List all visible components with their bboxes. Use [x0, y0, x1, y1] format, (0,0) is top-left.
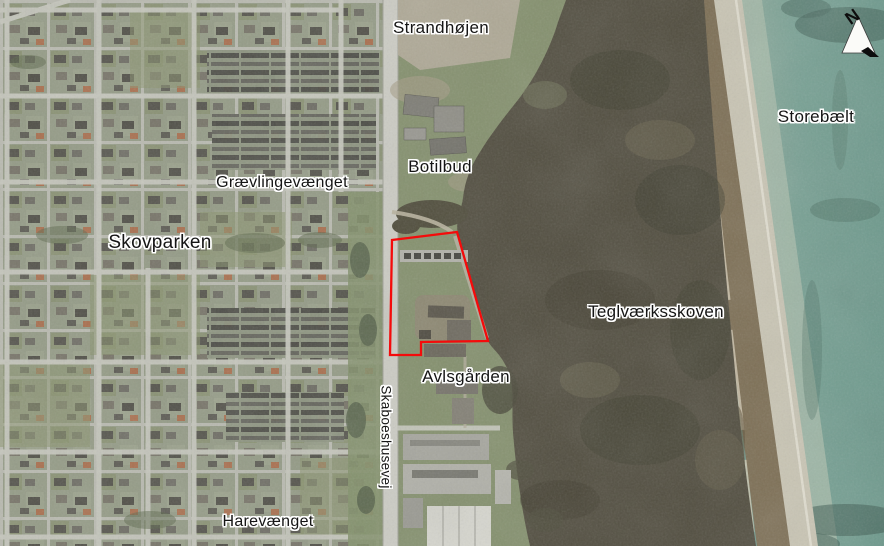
- aerial-map[interactable]: N Strandhøjen Storebælt Botilbud Grævlin…: [0, 0, 884, 546]
- map-canvas: N: [0, 0, 884, 546]
- grain-texture-overlay: [0, 0, 884, 546]
